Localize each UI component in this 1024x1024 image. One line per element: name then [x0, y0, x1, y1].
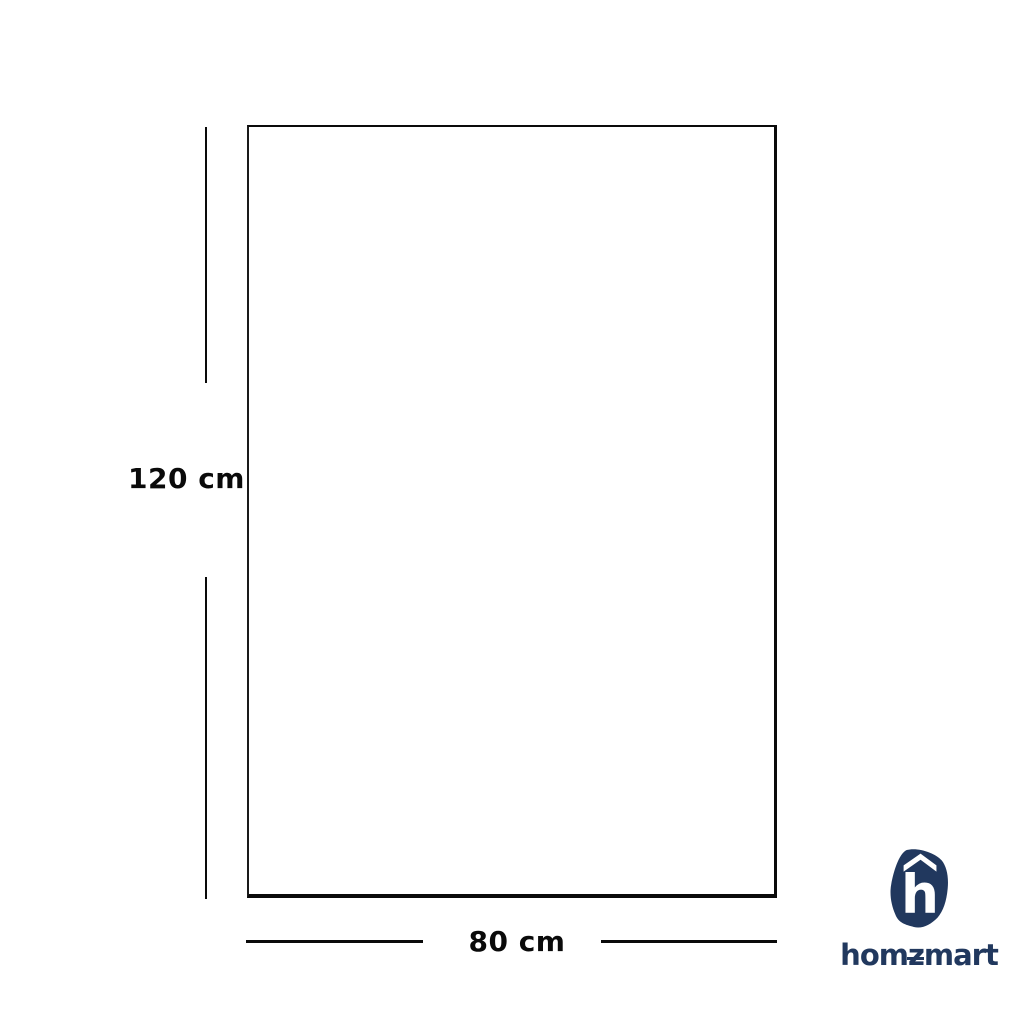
wordmark-segment-post: mart	[924, 938, 998, 972]
height-dimension-label: 120 cm	[128, 462, 232, 495]
width-dimension-label: 80 cm	[453, 925, 581, 958]
homzmart-logo-icon: h	[889, 849, 949, 928]
dimension-diagram-canvas: 120 cm 80 cm h homzmart	[0, 0, 1024, 1024]
wordmark-stylized-z: z	[908, 941, 924, 970]
brand-wordmark: homzmart	[838, 941, 1000, 970]
wordmark-segment-pre: hom	[840, 938, 908, 972]
product-outline-rect	[247, 125, 777, 898]
width-dimension-line-right	[601, 940, 777, 943]
logo-letter-h: h	[901, 863, 939, 926]
width-dimension-line-left	[246, 940, 423, 943]
homzmart-logo: h homzmart	[838, 849, 1000, 970]
height-dimension-line-upper	[205, 127, 207, 383]
height-dimension-line-lower	[205, 577, 207, 899]
